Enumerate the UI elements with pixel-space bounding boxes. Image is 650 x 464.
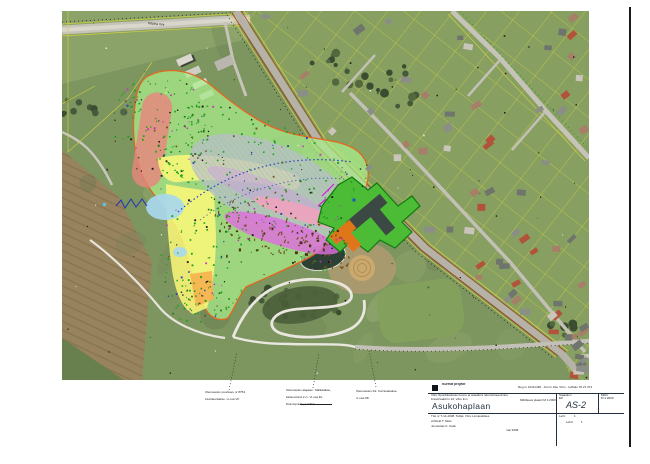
page-frame-line bbox=[629, 7, 631, 447]
annotation-1: Olemasolev puurkaev nr 8754. Likvideerit… bbox=[205, 391, 287, 405]
title-block-divider bbox=[556, 393, 557, 446]
title-block-divider bbox=[598, 393, 599, 413]
annotation-text: Likvideeritakse, vt osa VK bbox=[205, 398, 246, 402]
drawing-code: AS-2 bbox=[566, 400, 586, 410]
drafter-line: Joonestas K. Kask bbox=[431, 425, 456, 429]
architect-line: Arhitekt T. Mets bbox=[431, 420, 452, 424]
annotation-text: Olemasolev alajaam. Säilitatakse, bbox=[286, 389, 331, 393]
title-block: Kurmik projekt Reg nr 10411438 · Jüri tn… bbox=[428, 383, 624, 447]
annotation-underline bbox=[300, 404, 332, 405]
sheets-total-value: 1 bbox=[581, 421, 583, 425]
annotation-text: vt osa AB bbox=[356, 397, 397, 401]
annotation-text: Olemasolev tiik. Korrastatakse, bbox=[356, 390, 397, 394]
company-logo bbox=[432, 385, 438, 391]
date-line: mai 2008 bbox=[506, 429, 518, 433]
sports-field bbox=[375, 276, 467, 345]
project-name: Võru Spordikeskuse hoone ja staadioni re… bbox=[431, 394, 508, 398]
zone-lightblue bbox=[146, 194, 184, 220]
column-value: EP bbox=[559, 397, 563, 401]
company-address: Reg nr 10411438 · Jüri tn 19a, Võru · te… bbox=[518, 386, 592, 390]
work-number: Töö nr T-14-2008. Tellija: Võru Linnaval… bbox=[431, 415, 489, 419]
company-name: Kurmik projekt bbox=[442, 383, 465, 386]
sheet-value: 1 bbox=[574, 415, 576, 419]
drawing-title: Asukohaplaan bbox=[432, 401, 491, 411]
sheets-total-label: Lehti: bbox=[566, 421, 573, 425]
annotation-text: Olemasolev puurkaev nr 8754. bbox=[205, 391, 246, 395]
column-value: M 1:2000 bbox=[601, 397, 614, 401]
sheet-label: Leht: bbox=[559, 415, 566, 419]
stage-note: Mõõtkava plaanil M 1:2000 bbox=[520, 399, 556, 403]
title-block-divider bbox=[428, 413, 624, 414]
annotation-3: Olemasolev tiik. Korrastatakse, vt osa A… bbox=[356, 390, 439, 404]
annotation-text: kaitsevöönd 2 m. Vt osa EL bbox=[286, 396, 331, 400]
drawing-page: { "map": { "road_label": "Räpina mnt" },… bbox=[0, 0, 650, 459]
mound bbox=[349, 255, 375, 281]
